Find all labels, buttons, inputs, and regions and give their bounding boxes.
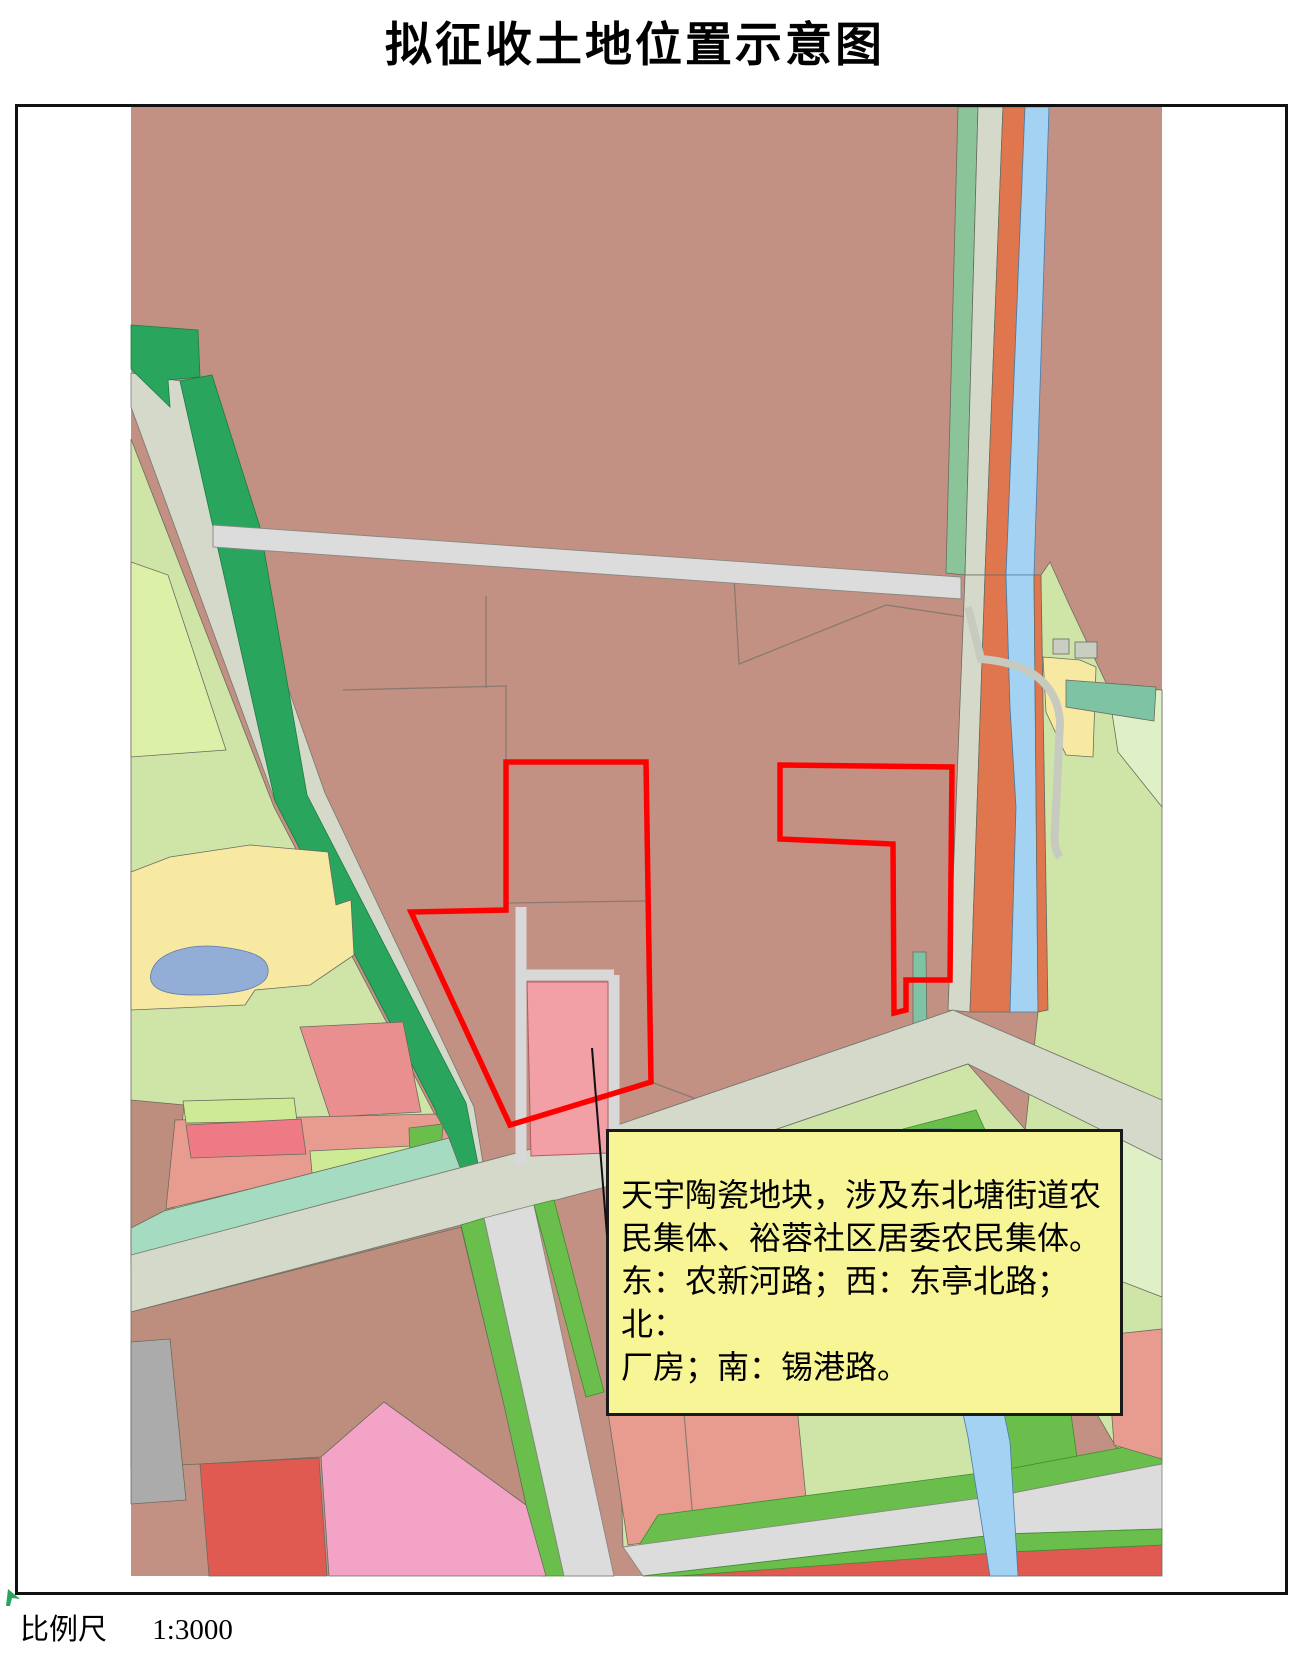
corner-marker-icon: [5, 1588, 27, 1608]
page: { "page": { "title": "拟征收土地位置示意图" }, "an…: [0, 0, 1304, 1663]
scale-value: 1:3000: [152, 1614, 233, 1646]
building-gray: [1075, 642, 1097, 658]
scale-row: 比例尺 1:3000: [20, 1606, 233, 1648]
annotation-box: 天宇陶瓷地块，涉及东北塘街道农 民集体、裕蓉社区居委农民集体。 东：农新河路；西…: [606, 1129, 1123, 1416]
land-parcel-bright-green: [183, 1098, 297, 1123]
building-gray: [1053, 639, 1069, 654]
land-parcel-red-pink: [186, 1119, 306, 1158]
scale-label: 比例尺: [20, 1614, 107, 1646]
page-title: 拟征收土地位置示意图: [0, 6, 1270, 75]
land-parcel-red: [200, 1458, 327, 1576]
leader-line: [585, 1040, 625, 1250]
map-frame: 天宇陶瓷地块，涉及东北塘街道农 民集体、裕蓉社区居委农民集体。 东：农新河路；西…: [15, 104, 1288, 1595]
